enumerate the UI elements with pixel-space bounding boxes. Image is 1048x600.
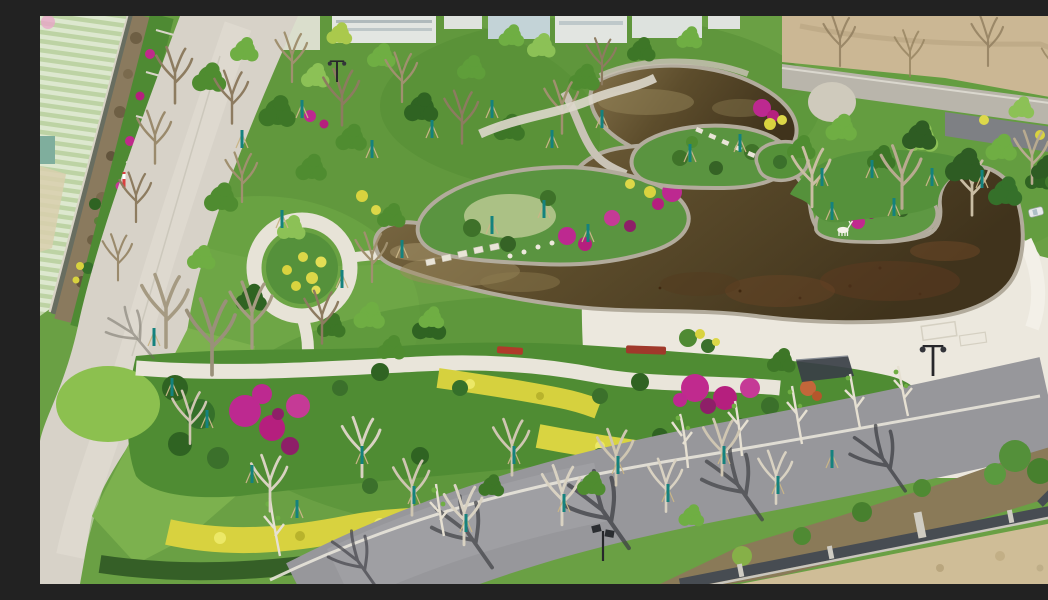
red-bench-long <box>626 345 666 354</box>
aerial-park-photo: Aerial drone view of a newly landscaped … <box>40 16 1048 584</box>
